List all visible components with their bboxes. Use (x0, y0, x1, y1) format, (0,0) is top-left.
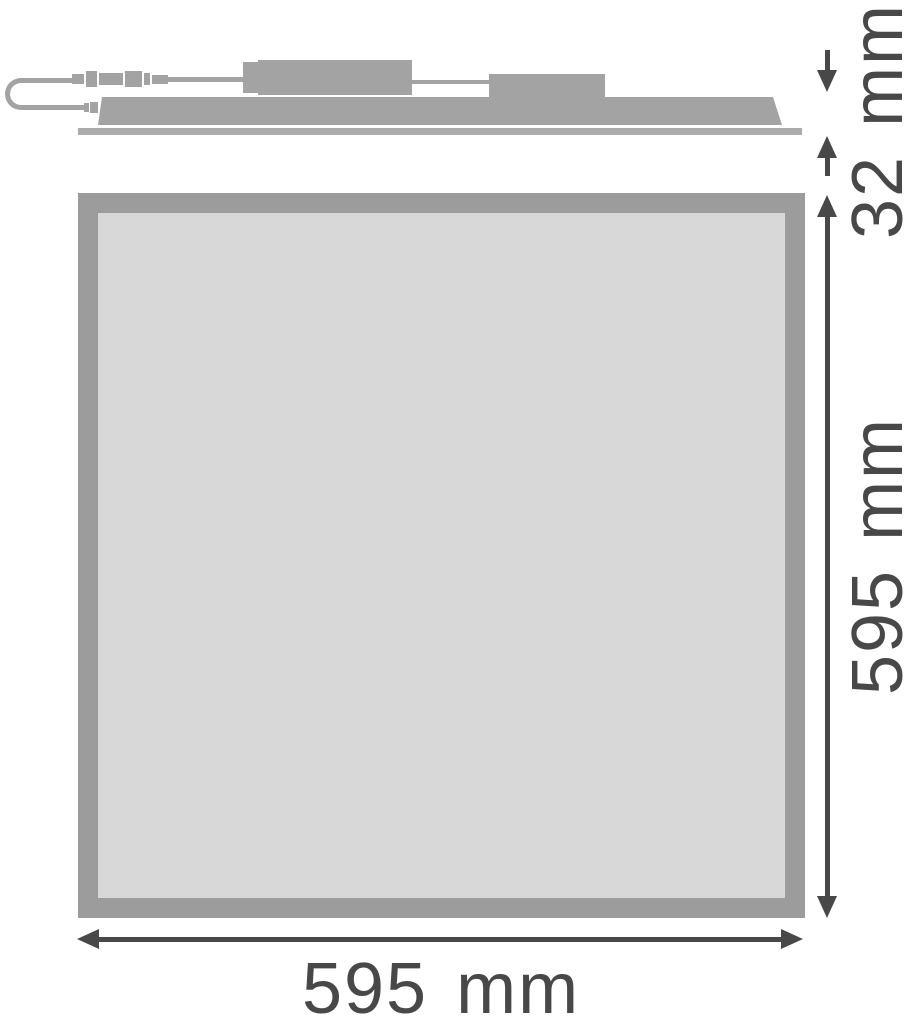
arrow-down-icon (817, 896, 837, 918)
panel-width-label: 595 mm (302, 953, 580, 1024)
connector-segment (99, 73, 123, 85)
profile-height-label: 32 mm (842, 3, 912, 239)
arrow-left-icon (77, 929, 99, 949)
arrow-down-icon (817, 70, 837, 92)
cable-loop (5, 78, 72, 110)
connector-segment (72, 74, 84, 84)
panel-baseplate (78, 128, 802, 135)
cable-wire-lower (67, 105, 85, 110)
panel-plug-large (90, 102, 98, 113)
connector-segment (152, 75, 168, 84)
driver-wire (412, 80, 489, 84)
arrow-up-icon (817, 136, 837, 158)
panel-front-view (78, 193, 805, 918)
driver-box-large (258, 60, 412, 95)
dimension-line (99, 937, 781, 942)
driver-box-small (489, 74, 605, 97)
connector-segment (144, 73, 150, 85)
panel-profile-body (98, 97, 782, 125)
panel-plug-small (84, 103, 89, 112)
dimension-line (825, 158, 830, 176)
dimension-line (825, 50, 830, 70)
dimension-drawing: 32 mm 595 mm 595 mm (0, 0, 912, 1024)
connector-segment (125, 71, 142, 87)
arrow-up-icon (817, 195, 837, 217)
driver-box-endcap (243, 62, 258, 93)
panel-height-label: 595 mm (842, 417, 912, 695)
connector-segment (86, 71, 97, 87)
cable-wire-upper (168, 77, 246, 82)
arrow-right-icon (781, 929, 803, 949)
dimension-line (825, 217, 830, 896)
